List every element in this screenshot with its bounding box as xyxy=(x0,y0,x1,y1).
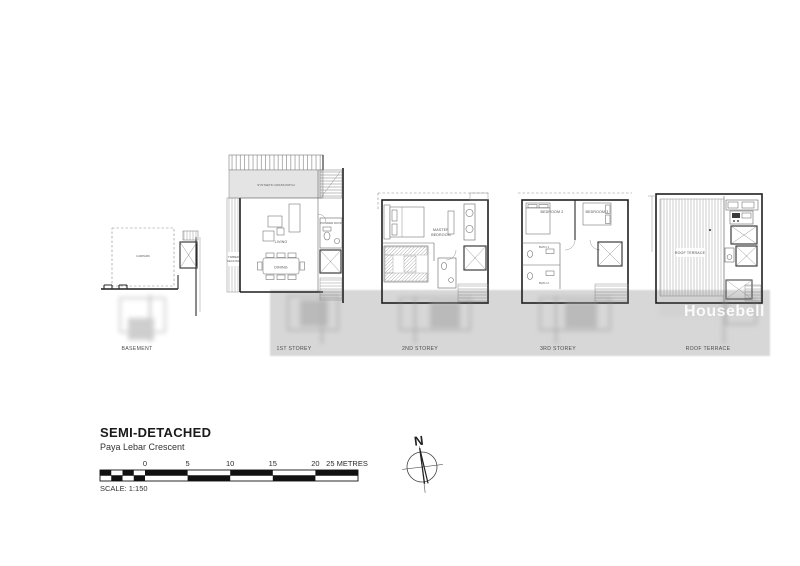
bedroom3-label: BEDROOM 3 xyxy=(586,210,609,214)
first-storey-stair-top xyxy=(320,170,342,198)
bedroom2-bed xyxy=(526,203,550,234)
scale-note: SCALE: 1:150 xyxy=(100,484,148,493)
bath1-label: BATH 1 xyxy=(539,245,549,249)
vanity-basins xyxy=(464,204,475,240)
scale-bar: 0 5 10 15 20 25 METRES xyxy=(100,459,368,481)
roof-terrace-label: ROOF TERRACE xyxy=(675,251,706,255)
north-arrow-icon: N xyxy=(398,431,446,496)
basement-plan: CARPARK BASEMENT xyxy=(101,228,200,352)
living-sofa-set: LIVING xyxy=(263,204,300,244)
third-storey-elevator xyxy=(598,242,622,266)
roof-skylight-b xyxy=(736,246,757,266)
deck-marker xyxy=(709,229,711,231)
bath2-label: BATH 2 xyxy=(539,281,549,285)
scale-tick-20: 20 xyxy=(311,459,319,468)
bedroom3-bed xyxy=(583,203,611,225)
roof-wc-fixture xyxy=(725,248,734,262)
roof-pantry-counter xyxy=(726,200,758,224)
floor-plan-sheet: CARPARK BASEMENT xyxy=(0,0,800,566)
living-label: LIVING xyxy=(275,240,288,244)
watermark: Housebell xyxy=(684,303,765,321)
scale-tick-10: 10 xyxy=(226,459,234,468)
basement-elevator-shaft xyxy=(180,242,197,268)
plan-drawing: CARPARK BASEMENT xyxy=(0,0,800,566)
master-bedroom-label-1: MASTER xyxy=(433,228,449,232)
second-storey-caption: 2ND STOREY xyxy=(402,346,438,352)
carpark-label: CARPARK xyxy=(136,254,150,258)
bedroom2-label: BEDROOM 2 xyxy=(541,210,564,214)
master-bed xyxy=(384,205,424,239)
roof-caption: ROOF TERRACE xyxy=(686,346,731,352)
scale-tick-5: 5 xyxy=(186,459,190,468)
dining-table: DINING xyxy=(258,253,305,280)
basement-caption: BASEMENT xyxy=(122,346,153,352)
roof-skylight-a xyxy=(731,226,757,244)
roof-deck: ROOF TERRACE xyxy=(660,199,724,296)
basement-stair xyxy=(183,231,198,240)
first-storey-caption: 1ST STOREY xyxy=(276,346,311,352)
third-storey-stair xyxy=(595,284,628,303)
drawing-title: SEMI-DETACHED xyxy=(100,425,211,440)
basement-ghost xyxy=(120,295,165,342)
bench xyxy=(448,211,454,234)
timber-deck: TIMBER DECKING xyxy=(227,198,241,292)
scale-tick-15: 15 xyxy=(269,459,277,468)
grass-patch: SYNTHETIC GRASS PATCH xyxy=(229,170,323,198)
scale-end-label: 25 METRES xyxy=(326,459,368,468)
drawing-subtitle: Paya Lebar Crescent xyxy=(100,442,185,452)
north-label: N xyxy=(413,433,424,449)
bath2: BATH 2 xyxy=(527,271,554,285)
bath1: BATH 1 xyxy=(527,245,554,257)
powder-label: POWDER ROOM xyxy=(320,221,343,225)
grass-label: SYNTHETIC GRASS PATCH xyxy=(257,183,294,187)
walk-in-wardrobe xyxy=(384,246,428,282)
first-storey-elevator xyxy=(320,250,341,273)
third-storey-caption: 3RD STOREY xyxy=(540,346,576,352)
second-storey-elevator xyxy=(464,246,486,270)
trellis xyxy=(229,155,323,170)
dining-label: DINING xyxy=(274,266,288,270)
master-bath xyxy=(438,250,456,288)
deck-label-2: DECKING xyxy=(227,259,241,263)
scale-tick-0: 0 xyxy=(143,459,147,468)
powder-room: POWDER ROOM xyxy=(318,214,343,248)
second-storey-stair xyxy=(458,284,488,302)
